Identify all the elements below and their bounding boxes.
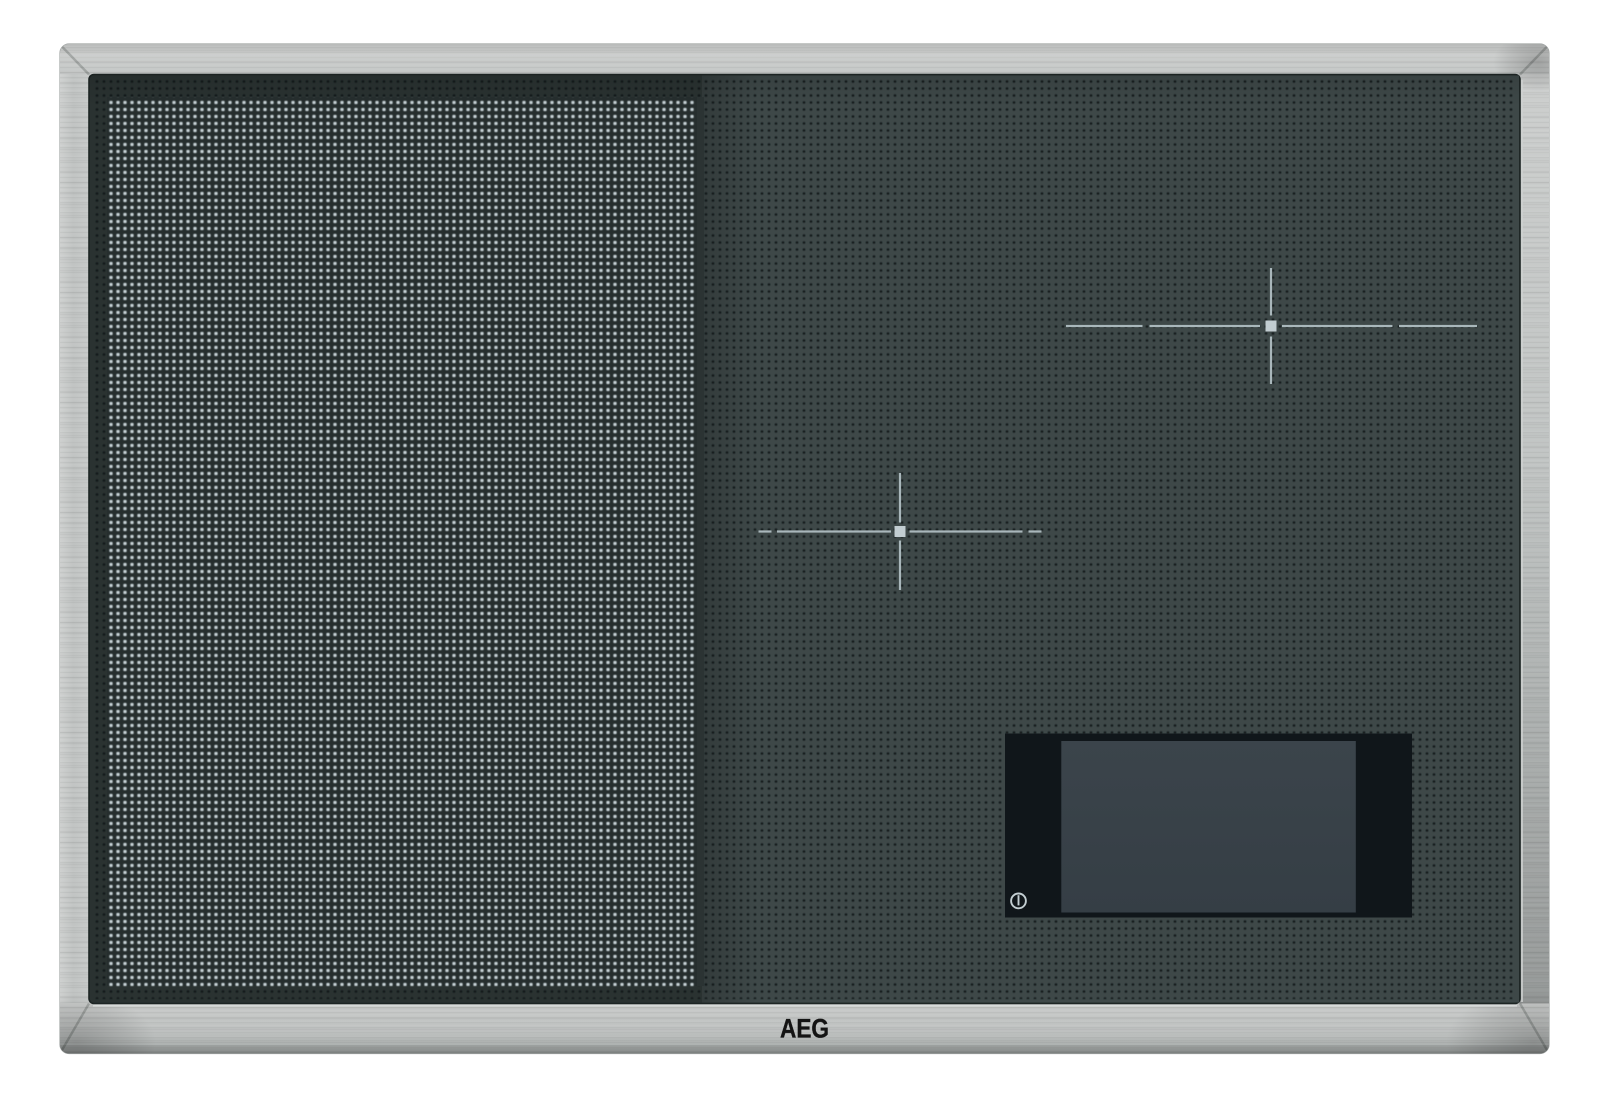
svg-text:AEG: AEG bbox=[780, 1014, 829, 1044]
